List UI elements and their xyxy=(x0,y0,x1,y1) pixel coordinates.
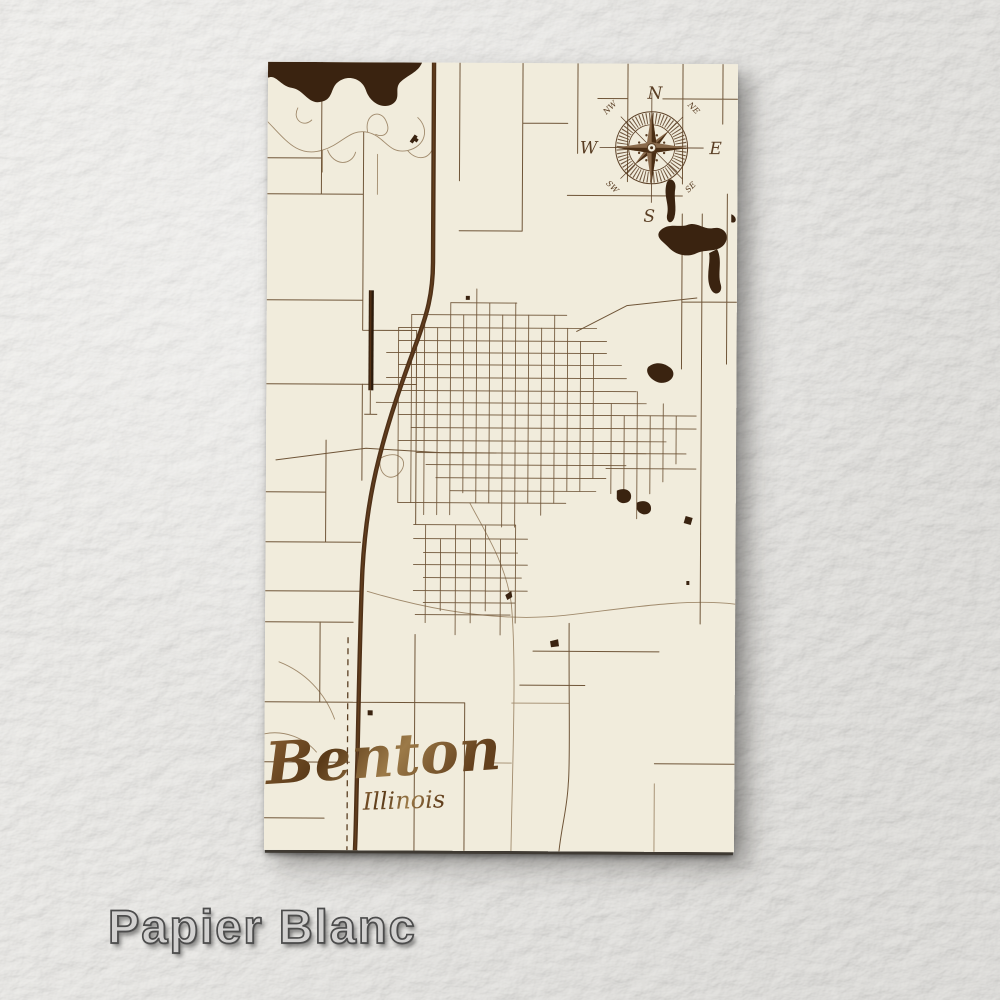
compass-w-label: W xyxy=(580,138,599,158)
compass-s-label: S xyxy=(643,207,655,227)
compass-n-label: N xyxy=(646,84,663,104)
street-map: N S E W NW NE SW SE Benton Illinois xyxy=(264,62,738,852)
style-label: Papier Blanc xyxy=(108,899,417,954)
map-subtitle: Illinois xyxy=(361,785,445,815)
map-poster: N S E W NW NE SW SE Benton Illinois xyxy=(264,62,738,852)
product-photo: N S E W NW NE SW SE Benton Illinois Papi… xyxy=(0,0,1000,1000)
compass-e-label: E xyxy=(708,139,722,159)
